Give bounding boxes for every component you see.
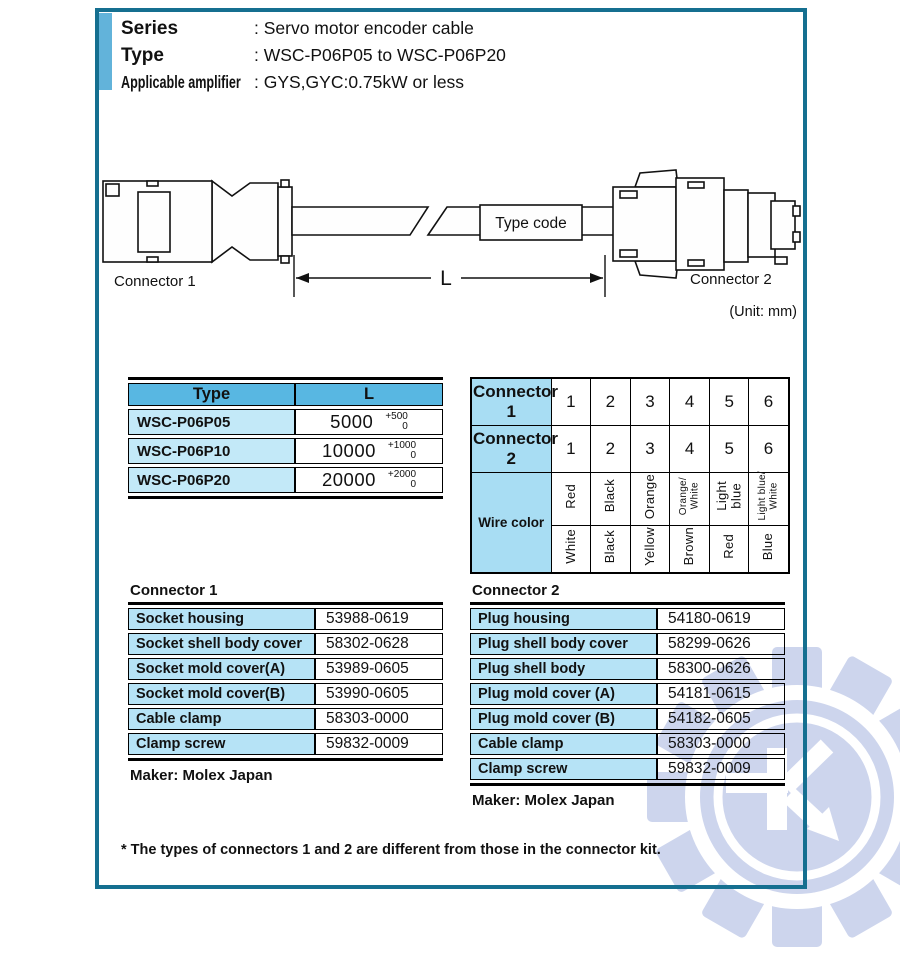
pin-table: Connector 1 1 2 3 4 5 6 Connector 2 1 2 … <box>470 377 790 574</box>
part-name: Plug shell body cover <box>470 633 657 655</box>
pin-cell: 4 <box>670 425 710 472</box>
part-name: Plug mold cover (B) <box>470 708 657 730</box>
table-row: Clamp screw59832-0009 <box>128 733 443 755</box>
unit-note: (Unit: mm) <box>729 304 797 320</box>
part-name: Socket shell body cover <box>128 633 315 655</box>
pin-row-label: Connector 1 <box>471 378 551 425</box>
pin-cell: 3 <box>630 425 670 472</box>
header-accent-bar <box>99 13 112 90</box>
part-number: 58303-0000 <box>657 733 785 755</box>
length-table-header-l: L <box>295 383 443 406</box>
part-number: 58303-0000 <box>315 708 443 730</box>
part-name: Socket mold cover(B) <box>128 683 315 705</box>
length-table-wrap: Type L WSC-P06P05 5000+5000 WSC-P06P10 1… <box>128 377 443 499</box>
pin-cell: 5 <box>709 378 749 425</box>
pin-cell: 6 <box>749 425 789 472</box>
wire-color-cell: Orange <box>630 472 670 525</box>
header: Series : Servo motor encoder cable Type … <box>121 18 761 99</box>
part-number: 53990-0605 <box>315 683 443 705</box>
series-value: : Servo motor encoder cable <box>254 18 474 39</box>
length-cell: 20000+20000 <box>295 467 443 493</box>
table-row: WSC-P06P05 5000+5000 <box>128 409 443 435</box>
table-row: Socket housing53988-0619 <box>128 608 443 630</box>
connector2-label: Connector 2 <box>690 271 772 288</box>
part-number: 58300-0626 <box>657 658 785 680</box>
connector1-label: Connector 1 <box>114 273 196 290</box>
wire-color-cell: Light blue/ White <box>749 472 789 525</box>
length-cell: 10000+10000 <box>295 438 443 464</box>
part-number: 58299-0626 <box>657 633 785 655</box>
length-table-header-type: Type <box>128 383 295 406</box>
connector1-maker-note: Maker: Molex Japan <box>130 767 443 784</box>
length-cell: 5000+5000 <box>295 409 443 435</box>
table-row: Plug shell body cover58299-0626 <box>470 633 785 655</box>
dimension-arrow-right <box>590 273 603 283</box>
amplifier-value: : GYS,GYC:0.75kW or less <box>254 72 464 93</box>
type-code-label: Type code <box>495 215 567 232</box>
pin-cell: 6 <box>749 378 789 425</box>
connector2-maker-note: Maker: Molex Japan <box>472 792 785 809</box>
pin-cell: 2 <box>591 378 631 425</box>
pin-table-wrap: Connector 1 1 2 3 4 5 6 Connector 2 1 2 … <box>470 377 790 574</box>
part-number: 59832-0009 <box>315 733 443 755</box>
type-label: Type <box>121 45 254 67</box>
table-row: Cable clamp58303-0000 <box>128 708 443 730</box>
part-name: Plug mold cover (A) <box>470 683 657 705</box>
type-cell: WSC-P06P10 <box>128 438 295 464</box>
pin-cell: 5 <box>709 425 749 472</box>
part-name: Clamp screw <box>128 733 315 755</box>
connector2-drawing <box>613 170 800 278</box>
amplifier-label: Applicable amplifier <box>121 72 254 93</box>
part-number: 54182-0605 <box>657 708 785 730</box>
header-row-amplifier: Applicable amplifier : GYS,GYC:0.75kW or… <box>121 72 761 99</box>
part-name: Cable clamp <box>470 733 657 755</box>
wire-color-cell: Yellow <box>630 525 670 573</box>
part-name: Socket housing <box>128 608 315 630</box>
part-number: 58302-0628 <box>315 633 443 655</box>
header-row-type: Type : WSC-P06P05 to WSC-P06P20 <box>121 45 761 72</box>
connector1-drawing <box>103 180 292 263</box>
part-name: Clamp screw <box>470 758 657 780</box>
pin-cell: 2 <box>591 425 631 472</box>
wire-color-cell: Black <box>591 472 631 525</box>
pin-row-connector2: Connector 2 1 2 3 4 5 6 <box>471 425 789 472</box>
part-number: 54180-0619 <box>657 608 785 630</box>
page: { "header": { "rows": [ {"label": "Serie… <box>0 0 900 900</box>
part-number: 54181-0615 <box>657 683 785 705</box>
type-cell: WSC-P06P20 <box>128 467 295 493</box>
type-value: : WSC-P06P05 to WSC-P06P20 <box>254 45 506 66</box>
pin-cell: 3 <box>630 378 670 425</box>
wire-color-cell: White <box>551 525 591 573</box>
connector2-parts-title: Connector 2 <box>472 582 785 599</box>
part-name: Socket mold cover(A) <box>128 658 315 680</box>
type-code-box: Type code <box>480 205 582 240</box>
length-table: Type L WSC-P06P05 5000+5000 WSC-P06P10 1… <box>128 377 443 499</box>
cable-diagram: Type code L Conn <box>99 165 803 320</box>
wire-color-cell: Blue <box>749 525 789 573</box>
table-row: Socket shell body cover58302-0628 <box>128 633 443 655</box>
part-number: 59832-0009 <box>657 758 785 780</box>
connector2-parts-table: Plug housing54180-0619 Plug shell body c… <box>470 602 785 786</box>
type-cell: WSC-P06P05 <box>128 409 295 435</box>
table-row: WSC-P06P20 20000+20000 <box>128 467 443 493</box>
table-row: Plug shell body58300-0626 <box>470 658 785 680</box>
part-name: Plug shell body <box>470 658 657 680</box>
part-name: Plug housing <box>470 608 657 630</box>
connector1-parts-section: Connector 1 Socket housing53988-0619 Soc… <box>128 582 443 784</box>
connector1-parts-title: Connector 1 <box>130 582 443 599</box>
table-row: Cable clamp58303-0000 <box>470 733 785 755</box>
table-row: Socket mold cover(B)53990-0605 <box>128 683 443 705</box>
wire-color-label: Wire color <box>471 472 551 573</box>
series-label: Series <box>121 18 254 40</box>
connector1-parts-table: Socket housing53988-0619 Socket shell bo… <box>128 602 443 761</box>
pin-row-connector1: Connector 1 1 2 3 4 5 6 <box>471 378 789 425</box>
wire-color-cell: Brown <box>670 525 710 573</box>
wire-color-cell: Red <box>709 525 749 573</box>
wire-color-row-top: Wire color Red Black Orange Orange/ Whit… <box>471 472 789 525</box>
wire-color-cell: Light blue <box>709 472 749 525</box>
table-row: Plug mold cover (A)54181-0615 <box>470 683 785 705</box>
table-row: WSC-P06P10 10000+10000 <box>128 438 443 464</box>
table-row: Socket mold cover(A)53989-0605 <box>128 658 443 680</box>
table-row: Plug housing54180-0619 <box>470 608 785 630</box>
wire-color-cell: Orange/ White <box>670 472 710 525</box>
datasheet-frame: Series : Servo motor encoder cable Type … <box>95 8 807 889</box>
wire-color-cell: Black <box>591 525 631 573</box>
pin-row-label: Connector 2 <box>471 425 551 472</box>
pin-cell: 4 <box>670 378 710 425</box>
footnote: * The types of connectors 1 and 2 are di… <box>121 842 661 858</box>
length-table-header-row: Type L <box>128 383 443 406</box>
part-name: Cable clamp <box>128 708 315 730</box>
length-label: L <box>440 267 452 290</box>
table-row: Plug mold cover (B)54182-0605 <box>470 708 785 730</box>
header-row-series: Series : Servo motor encoder cable <box>121 18 761 45</box>
wire-color-cell: Red <box>551 472 591 525</box>
dimension-arrow-left <box>296 273 309 283</box>
table-row: Clamp screw59832-0009 <box>470 758 785 780</box>
part-number: 53988-0619 <box>315 608 443 630</box>
part-number: 53989-0605 <box>315 658 443 680</box>
connector2-parts-section: Connector 2 Plug housing54180-0619 Plug … <box>470 582 785 809</box>
